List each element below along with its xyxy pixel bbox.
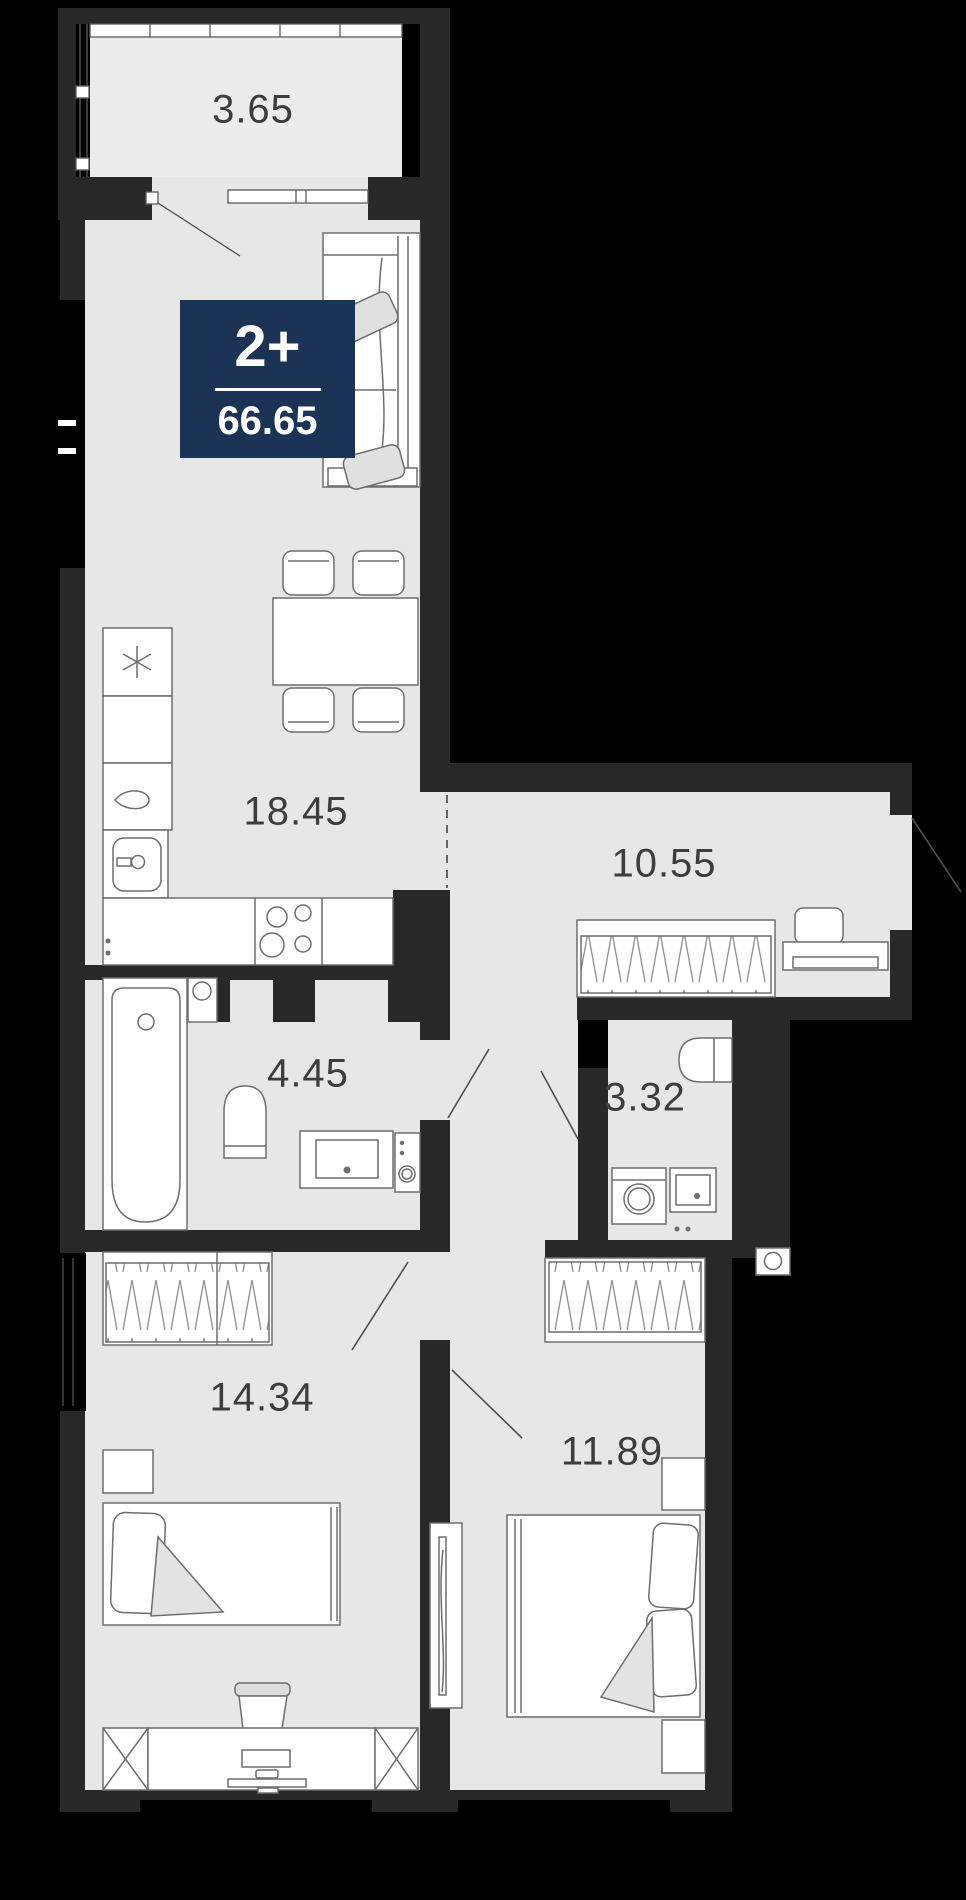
bedroom-area-label: 14.34 bbox=[209, 1376, 314, 1421]
wc-washing-machine bbox=[612, 1168, 666, 1224]
bathtub bbox=[103, 978, 187, 1230]
bathroom-vanity bbox=[300, 1131, 393, 1188]
bedroom1-wardrobe bbox=[103, 1252, 272, 1345]
dining-table bbox=[273, 598, 418, 685]
unit-rooms-label: 2+ bbox=[234, 318, 300, 376]
bedroom2-wardrobe bbox=[545, 1258, 705, 1342]
hallway-area-label: 10.55 bbox=[611, 842, 716, 887]
radiator bbox=[430, 1523, 462, 1708]
kitchen-counter bbox=[103, 898, 393, 965]
toilet bbox=[224, 1086, 266, 1158]
wc-area-label: 3.32 bbox=[604, 1076, 686, 1121]
bedroom2-area-label: 11.89 bbox=[561, 1430, 663, 1475]
washing-machine bbox=[395, 1133, 420, 1192]
balcony-area-label: 3.65 bbox=[212, 88, 294, 133]
kitchen-cabinet bbox=[103, 696, 172, 830]
bathroom-area-label: 4.45 bbox=[267, 1052, 349, 1097]
double-bed bbox=[507, 1515, 700, 1717]
water-heater bbox=[188, 978, 217, 1022]
kitchen-sink bbox=[103, 830, 168, 898]
unit-total-area: 66.65 bbox=[217, 401, 317, 441]
hall-wardrobe bbox=[577, 920, 775, 997]
kitchen-living-area-label: 18.45 bbox=[243, 790, 348, 835]
single-bed bbox=[103, 1503, 340, 1625]
badge-divider bbox=[215, 388, 321, 391]
desk bbox=[103, 1728, 418, 1793]
floor-plan-drawing bbox=[0, 0, 966, 1900]
wc-toilet bbox=[679, 1038, 732, 1082]
unit-badge: 2+ 66.65 bbox=[180, 300, 355, 458]
refrigerator bbox=[103, 628, 172, 696]
vent-shaft bbox=[756, 1248, 790, 1275]
desk-chair bbox=[235, 1683, 290, 1729]
floor-plan: 3.65 18.45 10.55 4.45 3.32 14.34 11.89 2… bbox=[0, 0, 966, 1900]
nightstand-2 bbox=[103, 1450, 153, 1493]
